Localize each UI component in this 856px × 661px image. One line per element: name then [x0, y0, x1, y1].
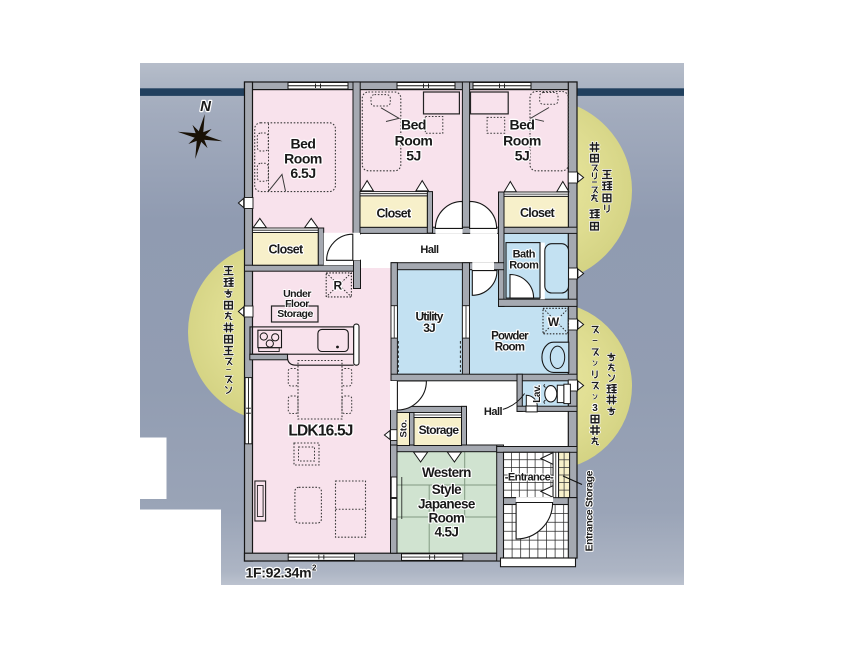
- svg-text:Storage: Storage: [419, 423, 460, 437]
- svg-text:1F:92.34m: 1F:92.34m: [246, 565, 312, 581]
- svg-text:LDK16.5J: LDK16.5J: [288, 423, 352, 440]
- svg-text:3: 3: [592, 403, 598, 414]
- svg-text:3J: 3J: [423, 321, 435, 335]
- svg-text:W: W: [548, 315, 560, 329]
- svg-text:Hall: Hall: [484, 406, 503, 418]
- svg-text:5J: 5J: [406, 148, 421, 164]
- svg-text:2: 2: [312, 564, 317, 573]
- svg-text:Room: Room: [495, 342, 525, 354]
- svg-text:5J: 5J: [515, 148, 530, 164]
- svg-text:Room: Room: [509, 259, 539, 271]
- svg-text:Room: Room: [503, 133, 541, 149]
- svg-text:-Entrance-: -Entrance-: [505, 471, 554, 483]
- svg-text:Entrance Storage: Entrance Storage: [584, 470, 596, 551]
- svg-text:Sto.: Sto.: [399, 420, 410, 438]
- svg-text:4.5J: 4.5J: [434, 524, 458, 539]
- svg-text:Japanese: Japanese: [418, 496, 476, 511]
- svg-text:Hall: Hall: [420, 244, 439, 256]
- svg-text:6.5J: 6.5J: [290, 165, 315, 181]
- svg-text:Closet: Closet: [268, 242, 304, 256]
- svg-text:Bed: Bed: [510, 117, 535, 133]
- svg-text:Room: Room: [395, 133, 433, 149]
- svg-text:Western: Western: [422, 465, 471, 480]
- svg-text:Lav.: Lav.: [532, 385, 543, 403]
- svg-text:Closet: Closet: [520, 206, 556, 220]
- svg-text:Bed: Bed: [401, 117, 426, 133]
- svg-text:R: R: [333, 278, 342, 292]
- svg-text:Style: Style: [432, 482, 462, 497]
- svg-text:Bed: Bed: [291, 136, 316, 152]
- svg-text:Closet: Closet: [376, 206, 412, 220]
- svg-text:Storage: Storage: [277, 308, 313, 320]
- svg-text:N: N: [200, 98, 212, 115]
